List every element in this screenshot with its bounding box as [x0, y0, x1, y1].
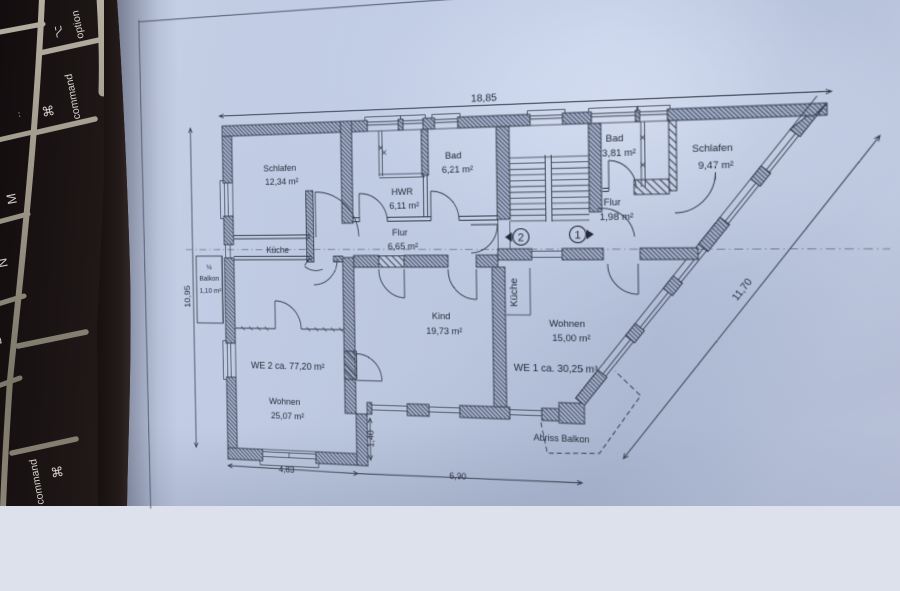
svg-text:Schlafen: Schlafen — [692, 141, 733, 154]
svg-text:6,65 m²: 6,65 m² — [388, 240, 419, 251]
svg-text:Balkon: Balkon — [199, 275, 219, 282]
svg-text:19,73 m²: 19,73 m² — [426, 325, 462, 337]
svg-text:½: ½ — [206, 263, 212, 272]
svg-text:6,90: 6,90 — [449, 471, 467, 482]
svg-text:9,47 m²: 9,47 m² — [698, 158, 734, 171]
svg-text:15,00 m²: 15,00 m² — [552, 332, 591, 344]
svg-text:1,10 m²: 1,10 m² — [199, 288, 222, 296]
svg-text:Küche: Küche — [266, 245, 289, 255]
svg-text:6,21 m²: 6,21 m² — [442, 163, 474, 175]
svg-text:N: N — [0, 257, 11, 269]
svg-text:Kind: Kind — [432, 310, 451, 321]
svg-text:1: 1 — [575, 229, 581, 242]
svg-text:6,11 m²: 6,11 m² — [389, 199, 419, 211]
svg-text:2: 2 — [518, 232, 524, 245]
svg-text:12,34 m²: 12,34 m² — [265, 175, 299, 187]
svg-text:1,98 m²: 1,98 m² — [600, 210, 634, 222]
svg-text:⌘: ⌘ — [49, 464, 66, 479]
svg-text:WE 1 ca. 30,25 m³: WE 1 ca. 30,25 m³ — [514, 362, 598, 375]
svg-text:⌥: ⌥ — [52, 24, 66, 39]
svg-text:25,07 m²: 25,07 m² — [271, 410, 305, 422]
svg-text:Flur: Flur — [604, 196, 621, 208]
svg-text:Wohnen: Wohnen — [269, 395, 301, 407]
svg-text:Schlafen: Schlafen — [263, 162, 296, 174]
svg-text:Abriss Balkon: Abriss Balkon — [534, 432, 590, 445]
svg-text:Küche: Küche — [508, 278, 520, 307]
svg-text:Bad: Bad — [445, 149, 462, 161]
svg-text:Flur: Flur — [392, 226, 408, 237]
svg-text:Bad: Bad — [606, 132, 624, 144]
svg-text:18,85: 18,85 — [471, 92, 497, 105]
svg-text:HWR: HWR — [391, 186, 413, 198]
svg-text:Wohnen: Wohnen — [549, 317, 585, 329]
svg-text:WE 2 ca. 77,20 m²: WE 2 ca. 77,20 m² — [251, 360, 325, 373]
svg-text:3,81 m²: 3,81 m² — [602, 146, 636, 159]
